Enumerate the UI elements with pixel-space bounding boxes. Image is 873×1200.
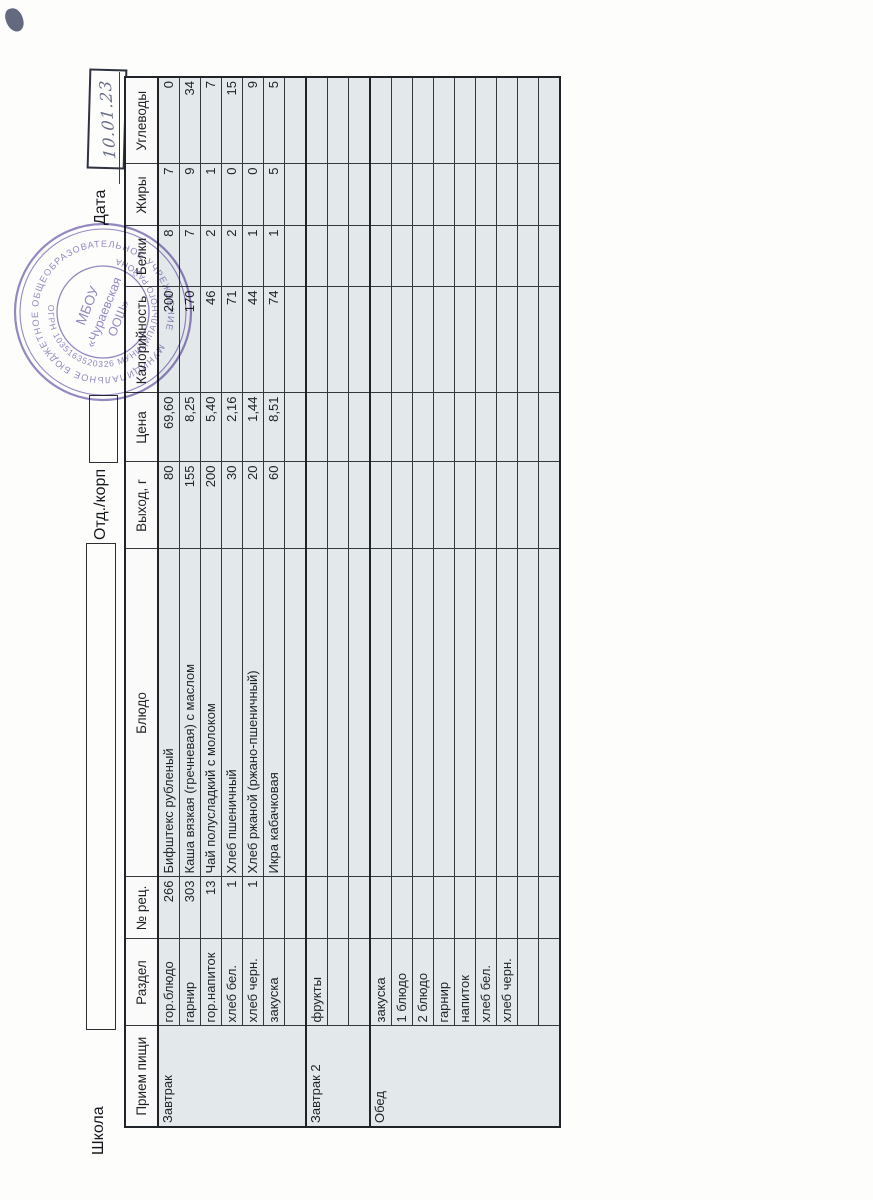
cell-carb [497, 77, 518, 164]
cell-prot [455, 226, 476, 287]
cell-razdel: фрукты [306, 939, 328, 1026]
cell-razdel: гарнир [180, 939, 201, 1026]
cell-num [518, 877, 539, 939]
cell-kcal [539, 287, 561, 393]
table-row: Обедзакуска [370, 77, 392, 1127]
cell-dish: Чай полусладкий с молоком [201, 549, 222, 877]
cell-price [306, 393, 328, 462]
cell-prot [518, 226, 539, 287]
cell-razdel: хлеб черн. [497, 939, 518, 1026]
table-row: гарнир303Каша вязкая (гречневая) с масло… [180, 77, 201, 1127]
cell-num: 1 [243, 877, 264, 939]
cell-kcal [349, 287, 371, 393]
handwritten-date-box: 10.01.23 [87, 68, 128, 169]
cell-prot [306, 226, 328, 287]
cell-fat [434, 164, 455, 226]
cell-price [370, 393, 392, 462]
cell-num [349, 877, 371, 939]
cell-price: 1,44 [243, 393, 264, 462]
cell-fat [518, 164, 539, 226]
cell-razdel [328, 939, 349, 1026]
table-row: хлеб бел. [476, 77, 497, 1127]
cell-fat: 0 [243, 164, 264, 226]
cell-kcal [306, 287, 328, 393]
cell-dish [476, 549, 497, 877]
cell-kcal [413, 287, 434, 393]
cell-fat [413, 164, 434, 226]
pencil-smudge: ··· [354, 0, 378, 44]
cell-kcal [455, 287, 476, 393]
cell-num [476, 877, 497, 939]
cell-carb [434, 77, 455, 164]
cell-fat [328, 164, 349, 226]
cell-price [539, 393, 561, 462]
cell-carb: 5 [264, 77, 285, 164]
cell-fat [539, 164, 561, 226]
table-row: гор.напиток13Чай полусладкий с молоком20… [201, 77, 222, 1127]
cell-fat: 9 [180, 164, 201, 226]
column-header: Блюдо [125, 549, 158, 877]
cell-price [285, 393, 307, 462]
cell-price [476, 393, 497, 462]
cell-num [434, 877, 455, 939]
column-header: Раздел [125, 939, 158, 1026]
cell-out [328, 462, 349, 549]
cell-carb [392, 77, 413, 164]
cell-fat [349, 164, 371, 226]
cell-price [497, 393, 518, 462]
cell-fat [392, 164, 413, 226]
cell-razdel: гор.блюдо [158, 939, 180, 1026]
column-header: Жиры [125, 164, 158, 226]
cell-out [370, 462, 392, 549]
cell-out [476, 462, 497, 549]
cell-kcal [285, 287, 307, 393]
cell-out: 155 [180, 462, 201, 549]
cell-dish [434, 549, 455, 877]
cell-out: 200 [201, 462, 222, 549]
cell-num: 13 [201, 877, 222, 939]
dept-label: Отд./корп [92, 469, 110, 540]
cell-razdel [349, 939, 371, 1026]
cell-fat: 7 [158, 164, 180, 226]
cell-price: 8,25 [180, 393, 201, 462]
cell-carb [518, 77, 539, 164]
cell-kcal [497, 287, 518, 393]
cell-dish [285, 549, 307, 877]
cell-dish: Хлеб ржаной (ржано-пшеничный) [243, 549, 264, 877]
cell-carb [349, 77, 371, 164]
cell-fat: 5 [264, 164, 285, 226]
table-row [328, 77, 349, 1127]
cell-carb [306, 77, 328, 164]
cell-prot [539, 226, 561, 287]
cell-carb [476, 77, 497, 164]
cell-kcal [370, 287, 392, 393]
cell-dish [349, 549, 371, 877]
cell-prot [434, 226, 455, 287]
cell-dish: Каша вязкая (гречневая) с маслом [180, 549, 201, 877]
cell-kcal: 44 [243, 287, 264, 393]
cell-price [518, 393, 539, 462]
cell-kcal: 71 [222, 287, 243, 393]
cell-fat [455, 164, 476, 226]
cell-price [413, 393, 434, 462]
cell-dish [539, 549, 561, 877]
cell-fat [476, 164, 497, 226]
cell-fat [306, 164, 328, 226]
cell-carb: 9 [243, 77, 264, 164]
cell-fat: 0 [222, 164, 243, 226]
table-row: хлеб бел.1Хлеб пшеничный302,16712015 [222, 77, 243, 1127]
school-field-box [86, 543, 116, 1030]
cell-prot [328, 226, 349, 287]
cell-razdel: напиток [455, 939, 476, 1026]
cell-kcal [392, 287, 413, 393]
ink-blot [3, 6, 26, 34]
cell-dish [455, 549, 476, 877]
cell-razdel [539, 939, 561, 1026]
cell-razdel: хлеб бел. [222, 939, 243, 1026]
cell-kcal: 74 [264, 287, 285, 393]
cell-razdel: 2 блюдо [413, 939, 434, 1026]
column-header: № рец. [125, 877, 158, 939]
landscape-content: Школа Отд./корп Дата 10.01.23 ··· Прием … [0, 0, 873, 1200]
table-row: хлеб черн.1Хлеб ржаной (ржано-пшеничный)… [243, 77, 264, 1127]
cell-carb: 15 [222, 77, 243, 164]
cell-out: 60 [264, 462, 285, 549]
cell-fat [285, 164, 307, 226]
cell-razdel: гарнир [434, 939, 455, 1026]
cell-razdel: гор.напиток [201, 939, 222, 1026]
cell-dish: Хлеб пшеничный [222, 549, 243, 877]
cell-price [328, 393, 349, 462]
cell-price [434, 393, 455, 462]
handwritten-date: 10.01.23 [95, 79, 119, 160]
table-row: 2 блюдо [413, 77, 434, 1127]
cell-prot: 1 [264, 226, 285, 287]
table-row: Завтракгор.блюдо266Бифштекс рубленый8069… [158, 77, 180, 1127]
table-row: Завтрак 2фрукты [306, 77, 328, 1127]
cell-out [497, 462, 518, 549]
cell-num [306, 877, 328, 939]
cell-out [285, 462, 307, 549]
cell-out [413, 462, 434, 549]
cell-carb [370, 77, 392, 164]
cell-price: 8,51 [264, 393, 285, 462]
school-label: Школа [90, 1106, 108, 1155]
cell-dish: Икра кабачковая [264, 549, 285, 877]
cell-out [539, 462, 561, 549]
cell-prot [285, 226, 307, 287]
cell-prot [349, 226, 371, 287]
column-header: Прием пищи [125, 1026, 158, 1127]
cell-kcal [476, 287, 497, 393]
cell-fat [370, 164, 392, 226]
table-row [349, 77, 371, 1127]
cell-razdel [518, 939, 539, 1026]
column-header: Углеводы [125, 77, 158, 164]
cell-fat [497, 164, 518, 226]
cell-razdel: хлеб черн. [243, 939, 264, 1026]
cell-num: 1 [222, 877, 243, 939]
cell-carb [539, 77, 561, 164]
cell-out [434, 462, 455, 549]
cell-num [455, 877, 476, 939]
cell-prot: 2 [222, 226, 243, 287]
cell-prot [476, 226, 497, 287]
table-row: закускаИкра кабачковая608,5174155 [264, 77, 285, 1127]
cell-num [264, 877, 285, 939]
cell-num: 303 [180, 877, 201, 939]
cell-price [455, 393, 476, 462]
table-row: 1 блюдо [392, 77, 413, 1127]
meal-cell: Обед [370, 1026, 560, 1127]
cell-prot [370, 226, 392, 287]
cell-price: 5,40 [201, 393, 222, 462]
cell-out [392, 462, 413, 549]
cell-razdel [285, 939, 307, 1026]
cell-num [370, 877, 392, 939]
cell-dish [328, 549, 349, 877]
cell-dish: Бифштекс рубленый [158, 549, 180, 877]
cell-kcal [328, 287, 349, 393]
menu-table: Прием пищиРаздел№ рец.БлюдоВыход, гЦенаК… [124, 76, 561, 1128]
cell-razdel: закуска [370, 939, 392, 1026]
scanned-menu-sheet: Школа Отд./корп Дата 10.01.23 ··· Прием … [0, 0, 873, 1200]
column-header: Выход, г [125, 462, 158, 549]
cell-razdel: закуска [264, 939, 285, 1026]
cell-carb: 0 [158, 77, 180, 164]
meal-cell: Завтрак 2 [306, 1026, 370, 1127]
cell-num [285, 877, 307, 939]
cell-carb [328, 77, 349, 164]
cell-carb [413, 77, 434, 164]
table-row [518, 77, 539, 1127]
cell-num: 266 [158, 877, 180, 939]
cell-out [518, 462, 539, 549]
cell-dish [370, 549, 392, 877]
cell-num [413, 877, 434, 939]
cell-price [392, 393, 413, 462]
cell-out: 20 [243, 462, 264, 549]
cell-num [497, 877, 518, 939]
cell-dish [518, 549, 539, 877]
cell-prot [413, 226, 434, 287]
table-row [285, 77, 307, 1127]
cell-carb: 7 [201, 77, 222, 164]
cell-dish [392, 549, 413, 877]
meal-cell: Завтрак [158, 1026, 306, 1127]
cell-razdel: 1 блюдо [392, 939, 413, 1026]
cell-out: 30 [222, 462, 243, 549]
cell-price [349, 393, 371, 462]
cell-out: 80 [158, 462, 180, 549]
cell-dish [413, 549, 434, 877]
cell-prot [497, 226, 518, 287]
cell-price: 2,16 [222, 393, 243, 462]
cell-fat: 1 [201, 164, 222, 226]
table-row: хлеб черн. [497, 77, 518, 1127]
cell-num [392, 877, 413, 939]
cell-carb: 34 [180, 77, 201, 164]
cell-num [328, 877, 349, 939]
cell-kcal [434, 287, 455, 393]
cell-carb [455, 77, 476, 164]
cell-out [306, 462, 328, 549]
cell-razdel: хлеб бел. [476, 939, 497, 1026]
cell-kcal [518, 287, 539, 393]
cell-dish [497, 549, 518, 877]
cell-dish [306, 549, 328, 877]
cell-out [455, 462, 476, 549]
table-row [539, 77, 561, 1127]
table-row: гарнир [434, 77, 455, 1127]
cell-out [349, 462, 371, 549]
table-row: напиток [455, 77, 476, 1127]
cell-num [539, 877, 561, 939]
cell-prot: 1 [243, 226, 264, 287]
cell-carb [285, 77, 307, 164]
cell-prot [392, 226, 413, 287]
